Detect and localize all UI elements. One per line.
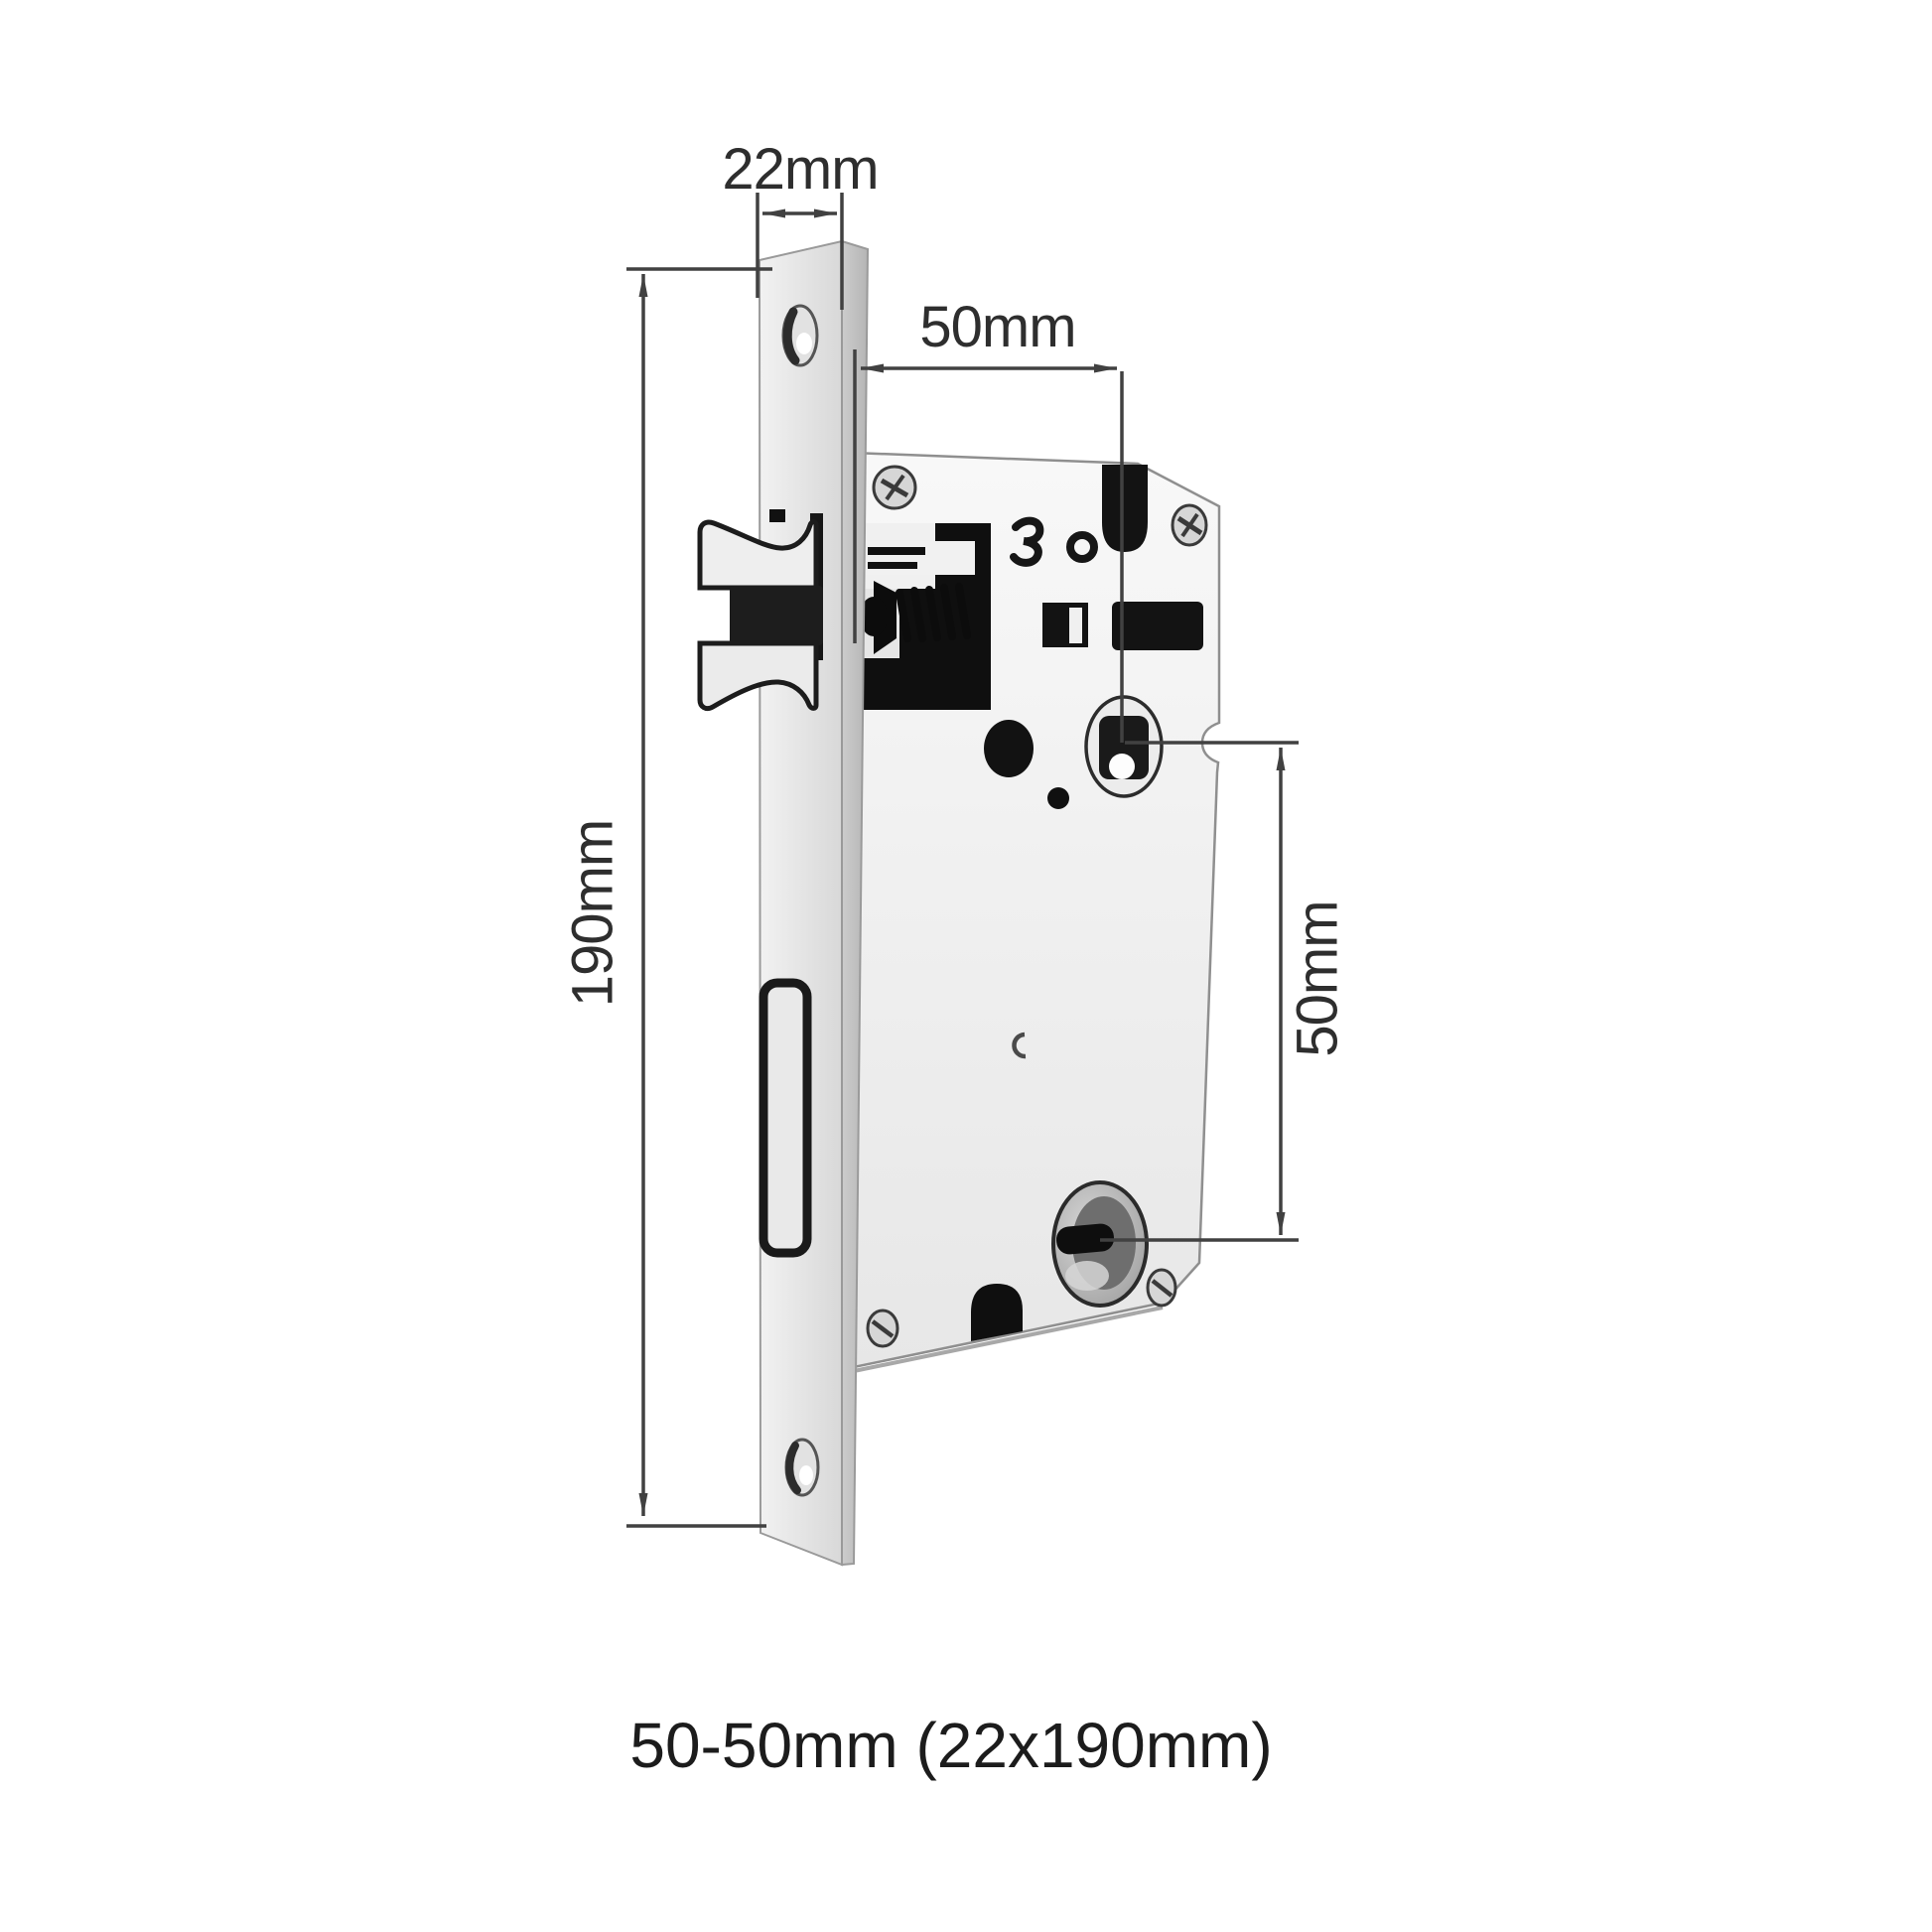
caption: 50-50mm (22x190mm) [629,1710,1272,1781]
cylinder-hole [1053,1182,1147,1306]
body-screw-top-right [1173,505,1206,545]
body-screw-bottom-left [868,1311,897,1346]
round-hole [984,720,1034,777]
latch-spring-window [860,523,991,710]
body-screw-top-left [874,467,915,508]
deadbolt-slot [763,983,807,1253]
faceplate-screw-top [783,306,817,365]
pin-hole [1047,787,1069,809]
body-screw-bottom-right [1148,1270,1175,1306]
label-hole-spacing: 50mm [1285,900,1349,1056]
faceplate-front [759,241,842,1565]
label-backset: 50mm [919,295,1075,359]
faceplate-screw-bottom [786,1440,818,1495]
lock-body [852,453,1219,1371]
lock-diagram-canvas: 22mm 190mm 50mm 50mm 50-50mm (22x190mm) [0,0,1932,1932]
product-dimension-diagram: 22mm 190mm 50mm 50mm 50-50mm (22x190mm) [0,0,1932,1932]
spindle-hub-hole [1086,697,1162,796]
label-faceplate-width: 22mm [722,137,878,202]
dim-faceplate-height [626,269,772,1526]
faceplate [759,241,868,1565]
label-faceplate-height: 190mm [560,820,624,1007]
latch-rubber-middle [730,586,823,645]
arch-cutout [971,1284,1023,1341]
latch-pin [769,509,785,522]
top-slot-cutout [1102,465,1148,552]
